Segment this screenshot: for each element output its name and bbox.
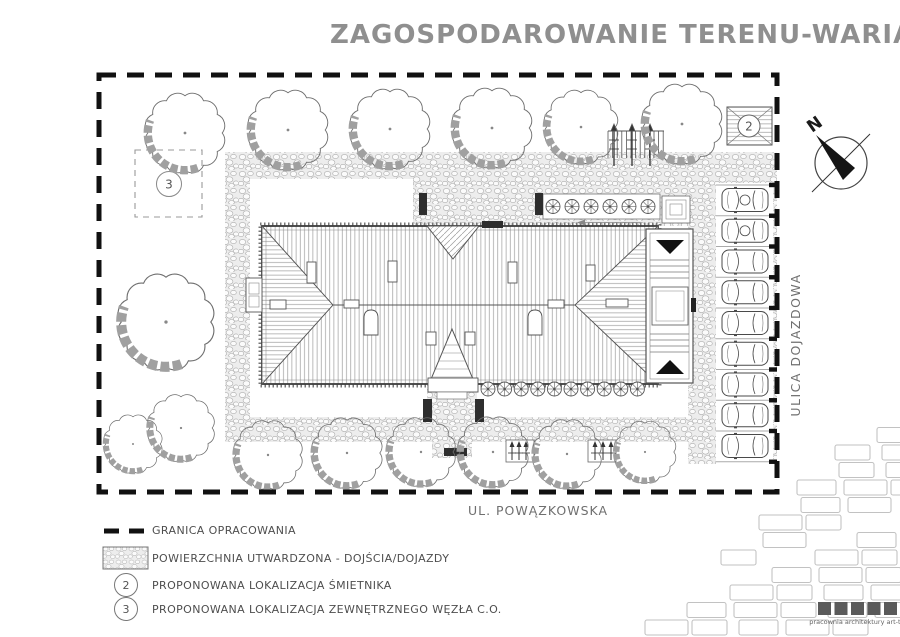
- parked-car: [722, 218, 768, 244]
- ramp: [662, 196, 690, 223]
- marker-3-number: 3: [165, 178, 173, 192]
- bush: [622, 200, 636, 214]
- tree: [148, 395, 215, 462]
- studio-label: pracownia architektury art-tu: [809, 618, 900, 626]
- north-arrow: N: [803, 113, 870, 192]
- brick: [730, 585, 773, 600]
- bush: [547, 382, 561, 396]
- brick: [806, 515, 841, 530]
- brick: [734, 603, 777, 618]
- brick: [777, 585, 812, 600]
- brick: [844, 480, 887, 495]
- brick: [781, 603, 816, 618]
- parking-stalls: [716, 183, 777, 464]
- brick: [801, 498, 840, 513]
- bush: [597, 382, 611, 396]
- bush: [641, 200, 655, 214]
- brick: [891, 480, 900, 495]
- brick: [877, 428, 900, 443]
- brick: [848, 498, 891, 513]
- building-roof-plan: [246, 224, 660, 399]
- brick: [871, 585, 900, 600]
- sapling-planters: [506, 440, 616, 462]
- parked-car: [722, 248, 768, 274]
- parked-car: [722, 187, 768, 213]
- bush: [514, 382, 528, 396]
- bush: [581, 382, 595, 396]
- brick: [824, 585, 863, 600]
- parked-car: [722, 341, 768, 367]
- north-label: N: [803, 113, 826, 138]
- door-mark: [691, 298, 696, 312]
- tree: [118, 274, 214, 370]
- bush: [584, 200, 598, 214]
- bush: [614, 382, 628, 396]
- heating-node-area: 3: [135, 150, 202, 217]
- brick: [866, 568, 900, 583]
- brick: [862, 550, 897, 565]
- marker-2-number: 2: [745, 120, 753, 134]
- north-needle-icon: [816, 135, 855, 180]
- bush: [531, 382, 545, 396]
- right-entrance-annex: [646, 229, 696, 383]
- brick: [645, 620, 688, 635]
- brick: [882, 445, 900, 460]
- studio-logo: pracownia architektury art-tu: [809, 602, 900, 626]
- parked-car: [722, 279, 768, 305]
- brick: [721, 550, 756, 565]
- stall-tick: [769, 367, 777, 371]
- parked-car: [722, 310, 768, 336]
- brick: [857, 533, 896, 548]
- site-plan-drawing: 2 3: [0, 0, 900, 637]
- brick: [815, 550, 858, 565]
- bush: [481, 382, 495, 396]
- bush: [498, 382, 512, 396]
- brick: [886, 463, 900, 478]
- brick: [835, 445, 870, 460]
- brick: [739, 620, 778, 635]
- bush: [565, 200, 579, 214]
- street-right-label: ULICA DOJAZDOWA: [788, 273, 803, 416]
- brick: [819, 568, 862, 583]
- bush: [564, 382, 578, 396]
- left-annex: [246, 278, 262, 312]
- site-plan-sheet: ZAGOSPODAROWANIE TERENU-WARIANT 4: [0, 0, 900, 637]
- parked-car: [722, 433, 768, 459]
- brick: [687, 603, 726, 618]
- parked-car: [722, 371, 768, 397]
- trash-enclosure: 2: [727, 107, 772, 145]
- brick: [797, 480, 836, 495]
- parked-car: [722, 402, 768, 428]
- brick: [759, 515, 802, 530]
- brick: [692, 620, 727, 635]
- brick: [839, 463, 874, 478]
- stall-tick: [769, 398, 777, 402]
- brick: [772, 568, 811, 583]
- brick: [763, 533, 806, 548]
- planter: [506, 440, 534, 462]
- bush: [603, 200, 617, 214]
- tree: [145, 93, 224, 172]
- bush: [546, 200, 560, 214]
- street-bottom-label: UL. POWĄZKOWSKA: [468, 503, 608, 518]
- stall-tick: [769, 429, 777, 433]
- tree: [642, 84, 721, 163]
- bush: [630, 382, 644, 396]
